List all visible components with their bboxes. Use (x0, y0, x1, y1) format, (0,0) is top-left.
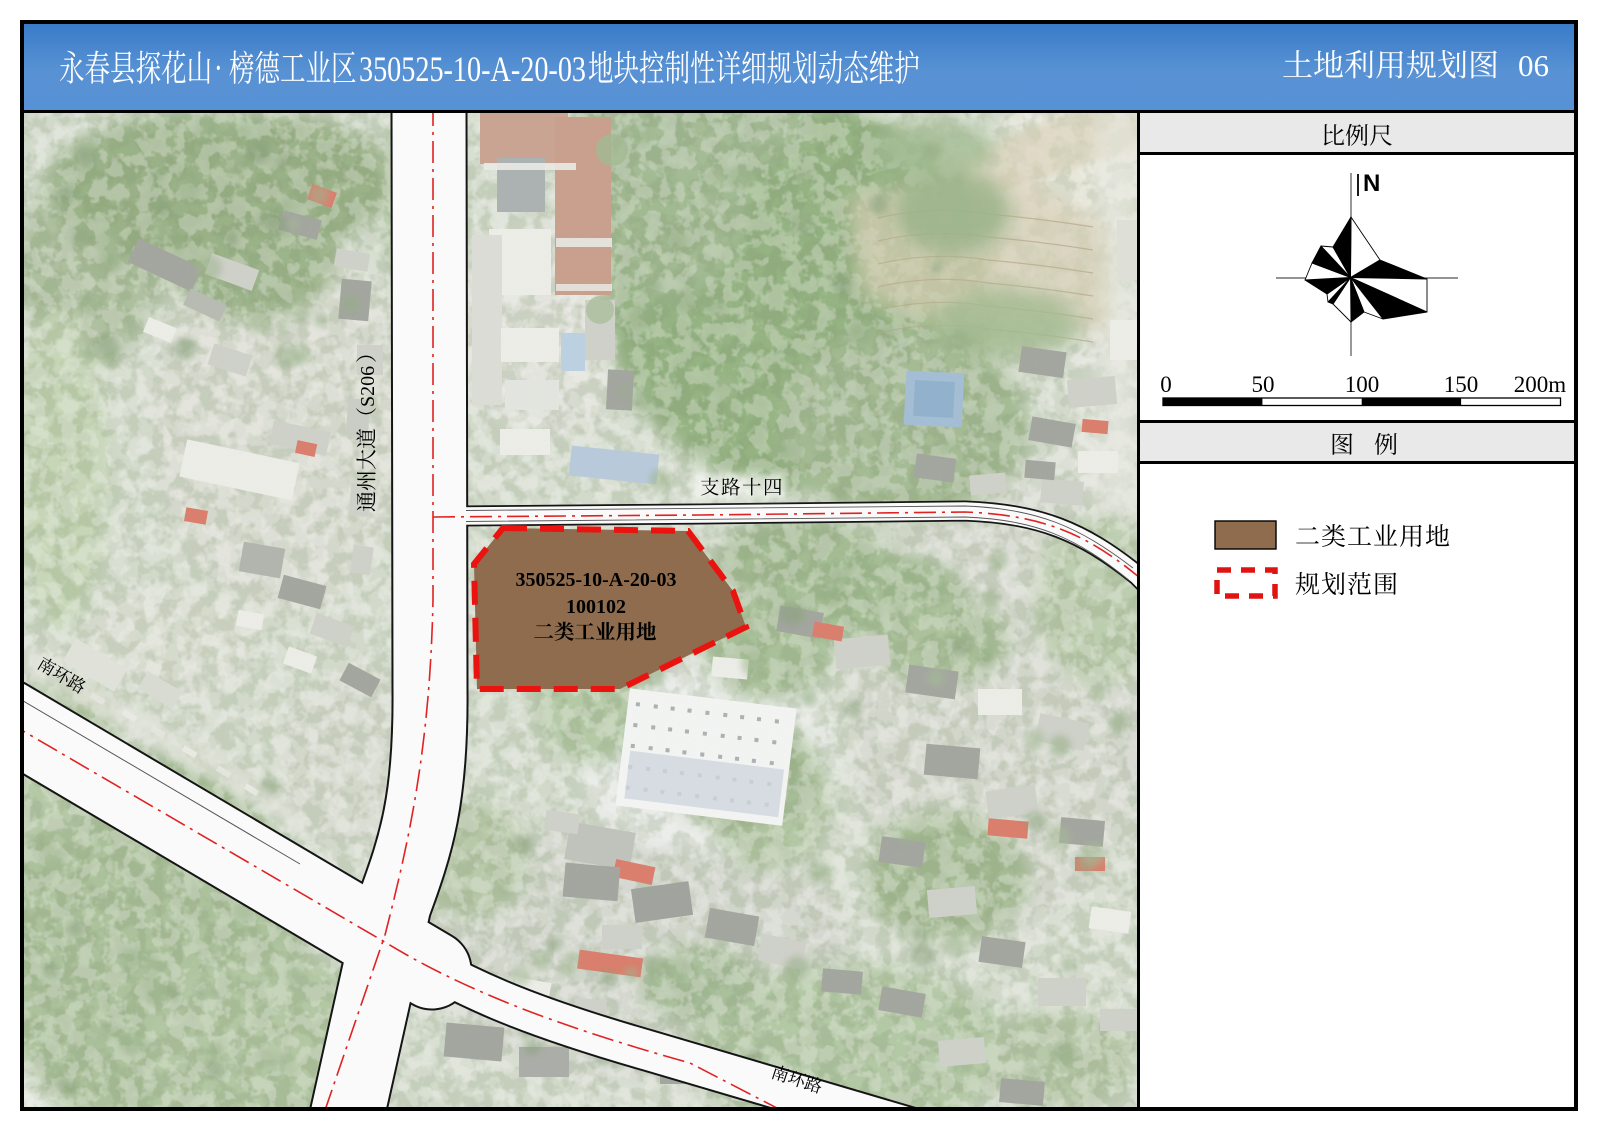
svg-text:S206: S206 (357, 366, 379, 407)
svg-text:50: 50 (1252, 372, 1275, 397)
svg-text:350525-10-A-20-03: 350525-10-A-20-03 (359, 50, 586, 90)
svg-text:150: 150 (1444, 372, 1479, 397)
svg-text:350525-10-A-20-03: 350525-10-A-20-03 (515, 569, 676, 591)
svg-text:100102: 100102 (566, 596, 626, 618)
svg-text:06: 06 (1518, 48, 1549, 83)
svg-text:100: 100 (1345, 372, 1380, 397)
svg-text:0: 0 (1160, 372, 1172, 397)
svg-text:N: N (1363, 170, 1380, 197)
svg-text:200m: 200m (1514, 372, 1567, 397)
